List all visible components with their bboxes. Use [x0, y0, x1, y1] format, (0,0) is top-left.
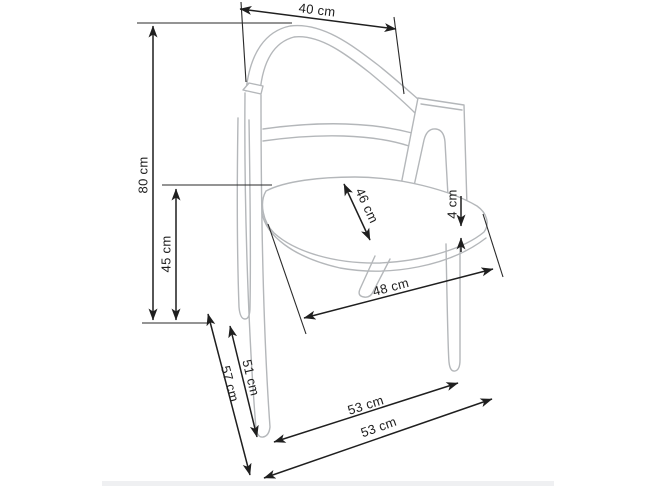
chair-backrest-outer [246, 26, 425, 105]
dim-line-53cm-lower [264, 399, 492, 478]
dim-label-53cm-upper: 53 cm [346, 392, 386, 417]
chair-back-right-leg [446, 244, 460, 371]
dimension-front-57cm: 57 cm [208, 314, 250, 475]
dim-label-53cm-lower: 53 cm [359, 414, 399, 440]
dimension-back-width-40cm: 40 cm [240, 0, 396, 29]
chair-mid-rail-top [263, 124, 412, 133]
chair-outline [237, 26, 487, 438]
dim-label-57cm: 57 cm [218, 364, 242, 404]
dimension-diagram: 40 cm 80 cm 45 cm 46 cm 4 cm 48 cm 51 cm [0, 0, 648, 486]
chair-post-cap [243, 83, 263, 94]
dimension-total-height-80cm: 80 cm [135, 26, 153, 320]
chair-dimension-drawing: 40 cm 80 cm 45 cm 46 cm 4 cm 48 cm 51 cm [0, 0, 648, 486]
dim-label-80cm: 80 cm [135, 157, 150, 194]
chair-mid-rail-bottom [263, 136, 409, 146]
chair-backrest-inner [260, 37, 415, 113]
ext-48-right [483, 214, 503, 277]
dim-label-45cm: 45 cm [158, 236, 173, 273]
dimension-depth-lower-53cm: 53 cm [264, 399, 492, 478]
dim-label-4cm: 4 cm [444, 189, 459, 218]
dimension-seat-height-45cm: 45 cm [158, 189, 176, 320]
bottom-page-strip [102, 481, 554, 486]
ext-40-left [241, 2, 246, 82]
dimension-seat-width-48cm: 48 cm [304, 269, 493, 318]
